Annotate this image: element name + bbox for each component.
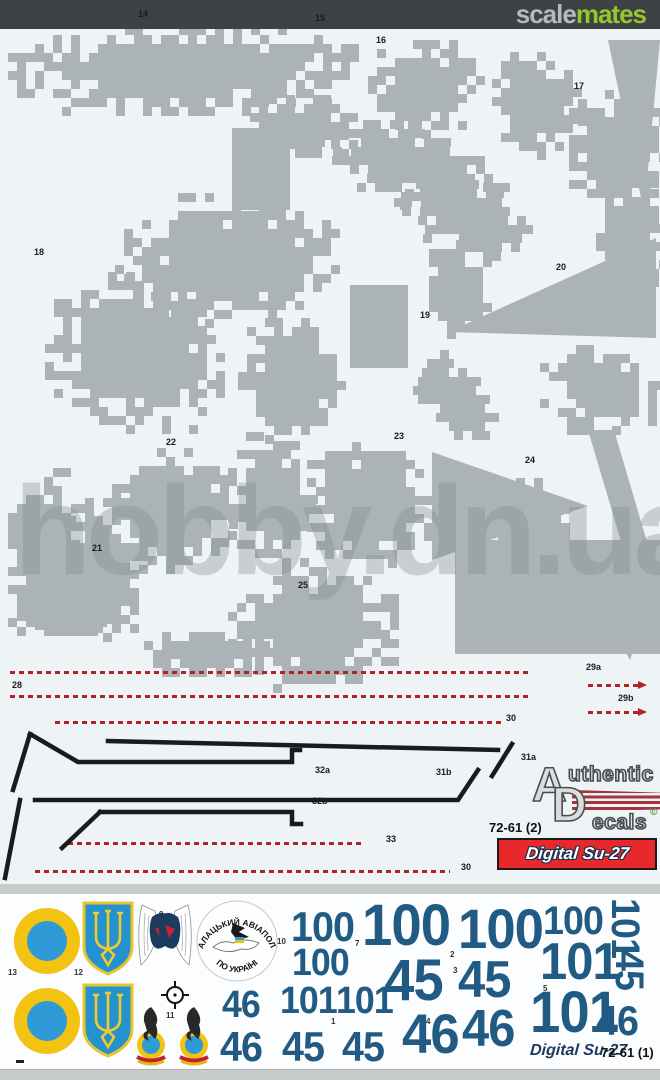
decal-index-label: 28 xyxy=(12,681,22,690)
decal-index-label: 7 xyxy=(355,940,359,948)
black-trim-line xyxy=(35,770,478,800)
decal-index-label: 29b xyxy=(618,694,634,703)
eagle-mascot-decal xyxy=(176,1005,212,1067)
decal-index-label: 10 xyxy=(277,938,286,946)
black-trim-line xyxy=(5,800,20,878)
catalog-number-sheet2: 72-61 (2) xyxy=(489,820,542,835)
numeral-decal: 46 xyxy=(220,1026,262,1068)
scalemates-logo: scalemates xyxy=(516,0,646,29)
numeral-decal: 45 xyxy=(342,1026,384,1068)
decal-index-label: 30 xyxy=(461,863,471,872)
decal-index-label: 4 xyxy=(426,1018,430,1026)
numeral-decal: 101 xyxy=(605,898,645,958)
numeral-decal: 46 xyxy=(462,1003,514,1055)
decal-index-label: 32a xyxy=(315,766,330,775)
decal-index-label: 9 xyxy=(159,911,163,919)
decal-index-label: 14 xyxy=(138,10,148,19)
black-trim-line xyxy=(108,741,498,750)
scalemates-watermark-bar: scalemates xyxy=(0,0,660,29)
authentic-decals-logo: A uthentic D ecals © xyxy=(528,760,660,838)
decal-index-label: 17 xyxy=(574,82,584,91)
scalemates-logo-green: mates xyxy=(576,0,646,29)
decal-index-label: 21 xyxy=(92,544,102,553)
catalog-number-sheet1: 72-61 (1) xyxy=(601,1045,654,1060)
black-trim-line xyxy=(62,812,100,848)
ukraine-roundel-decal xyxy=(12,906,82,976)
decal-index-label: 1 xyxy=(331,1018,335,1026)
decal-index-label: 23 xyxy=(394,432,404,441)
numeral-decal: 101 xyxy=(280,982,337,1020)
decal-index-label: 30 xyxy=(506,714,516,723)
black-trim-line xyxy=(30,734,300,762)
decal-index-label: 13 xyxy=(8,969,17,977)
decal-index-label: 18 xyxy=(34,248,44,257)
decal-index-label: 11 xyxy=(166,1012,174,1020)
numeral-decal: 100 xyxy=(362,897,450,955)
black-trim-line xyxy=(100,812,301,824)
ukraine-trident-shield-decal xyxy=(82,983,134,1059)
regiment-emblem-decal: ГАЛАЦЬКИЙ АВІАПОЛК ПО УКРАЇНІ xyxy=(195,899,279,983)
registration-mark xyxy=(16,1060,24,1063)
ukraine-roundel-decal xyxy=(12,986,82,1056)
title-badge: Digital Su-27 xyxy=(497,838,657,870)
winged-badge-decal xyxy=(136,901,194,973)
numeral-decal: 46 xyxy=(222,986,260,1024)
decal-index-label: 20 xyxy=(556,263,566,272)
numeral-decal: 100 xyxy=(458,901,543,957)
decal-index-label: 33 xyxy=(386,835,396,844)
eagle-mascot-decal xyxy=(133,1005,169,1067)
numeral-decal: 46 xyxy=(402,1006,459,1062)
decal-index-label: 29a xyxy=(586,663,601,672)
decal-index-label: 24 xyxy=(525,456,535,465)
decal-index-label: 5 xyxy=(543,985,547,993)
numeral-decal: 45 xyxy=(282,1026,324,1068)
decal-index-label: 3 xyxy=(453,967,457,975)
copyright-icon: © xyxy=(650,808,657,818)
decal-index-label: 32b xyxy=(312,797,328,806)
numeral-decal: 45 xyxy=(458,954,510,1006)
numeral-decal: 45 xyxy=(609,950,649,990)
decal-index-label: 16 xyxy=(376,36,386,45)
decal-index-label: 22 xyxy=(166,438,176,447)
decal-index-label: 12 xyxy=(74,969,83,977)
decal-sheet-photo: scalemates hobby.dn.ua A uthentic D ecal… xyxy=(0,0,660,1080)
hobby-watermark: hobby.dn.ua xyxy=(14,462,660,601)
decal-index-label: 31b xyxy=(436,768,452,777)
black-trim-lines xyxy=(0,0,660,884)
scalemates-logo-gray: scale xyxy=(516,0,576,29)
numeral-decal: 100 xyxy=(292,944,349,982)
ukraine-trident-shield-decal xyxy=(82,901,134,977)
red-stripe-arrowhead xyxy=(638,681,647,689)
title-badge-text: Digital Su-27 xyxy=(524,844,629,864)
decal-index-label: 19 xyxy=(420,311,430,320)
black-trim-line xyxy=(13,734,30,790)
decal-index-label: 2 xyxy=(450,951,454,959)
decal-index-label: 15 xyxy=(315,14,325,23)
logo-letter-d: D xyxy=(552,782,587,830)
decal-index-label: 31a xyxy=(521,753,536,762)
numeral-decal: 46 xyxy=(596,1000,638,1042)
logo-ecals: ecals xyxy=(592,812,647,833)
decal-index-label: 25 xyxy=(298,581,308,590)
red-stripe-arrowhead xyxy=(638,708,647,716)
